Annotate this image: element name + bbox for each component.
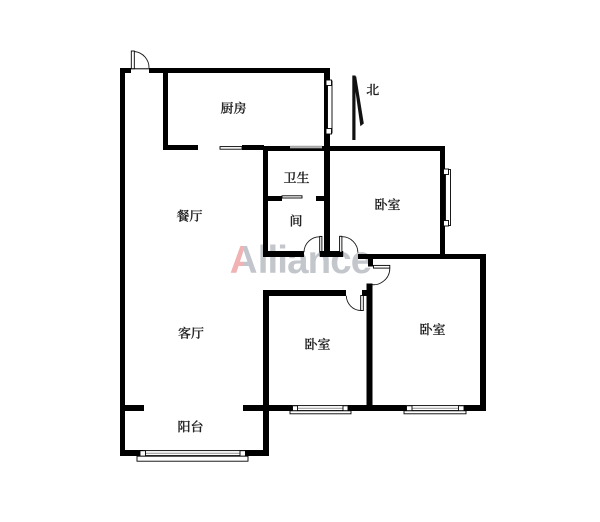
svg-text:lliance: lliance [258, 239, 372, 282]
svg-text:A: A [230, 239, 258, 282]
